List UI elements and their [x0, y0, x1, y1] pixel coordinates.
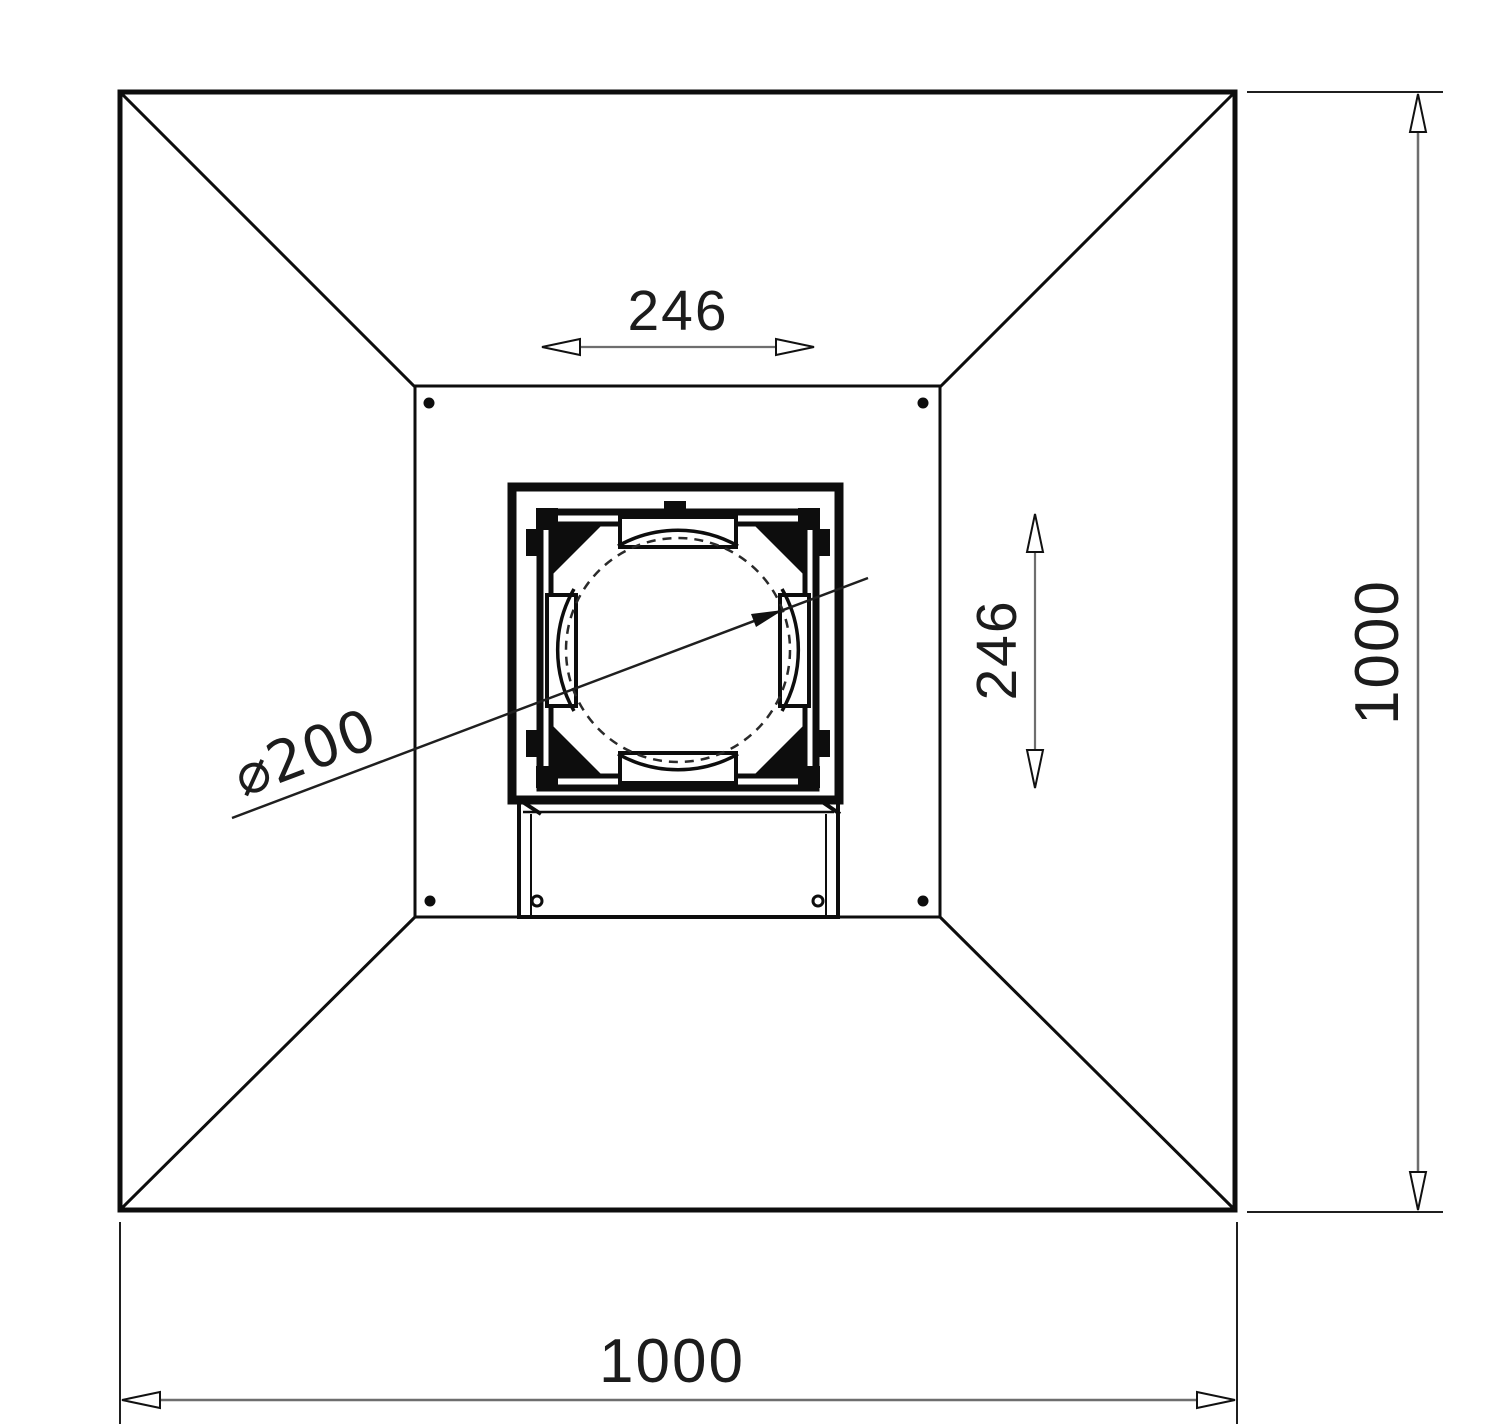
drawing-sheet: 246 246 ⌀200 1000 1000 — [0, 0, 1500, 1427]
arrow-right1000-down — [1410, 1172, 1426, 1210]
diffuser-plan-drawing: 246 246 ⌀200 1000 1000 — [0, 0, 1500, 1427]
arrow-right1000-up — [1410, 94, 1426, 132]
dim-bottom-1000: 1000 — [122, 1327, 1235, 1408]
arrow-bottom1000-left — [122, 1392, 160, 1408]
neck-screw-left — [532, 896, 542, 906]
neck-body — [519, 800, 838, 917]
screw-dot-topright — [918, 398, 929, 409]
screw-dot-bottomleft — [425, 896, 436, 907]
neck-screw-right — [813, 896, 823, 906]
tab-top — [620, 517, 736, 547]
screw-dot-bottomright — [918, 896, 929, 907]
clip-left-upper — [526, 529, 539, 556]
label-spigot-height: 246 — [965, 599, 1029, 700]
arrow-bottom1000-right — [1197, 1392, 1235, 1408]
label-overall-height: 1000 — [1343, 579, 1412, 725]
screw-dot-topleft — [424, 398, 435, 409]
neck-assembly — [515, 797, 840, 917]
clip-top-center — [664, 501, 686, 514]
tab-bottom — [620, 753, 736, 783]
clip-left-lower — [526, 730, 539, 757]
spigot-assembly — [512, 487, 839, 800]
clip-right-upper — [817, 529, 830, 556]
clip-right-lower — [817, 730, 830, 757]
dim-right-1000: 1000 — [1343, 94, 1426, 1210]
label-overall-width: 1000 — [599, 1327, 745, 1396]
label-spigot-width: 246 — [627, 279, 728, 343]
